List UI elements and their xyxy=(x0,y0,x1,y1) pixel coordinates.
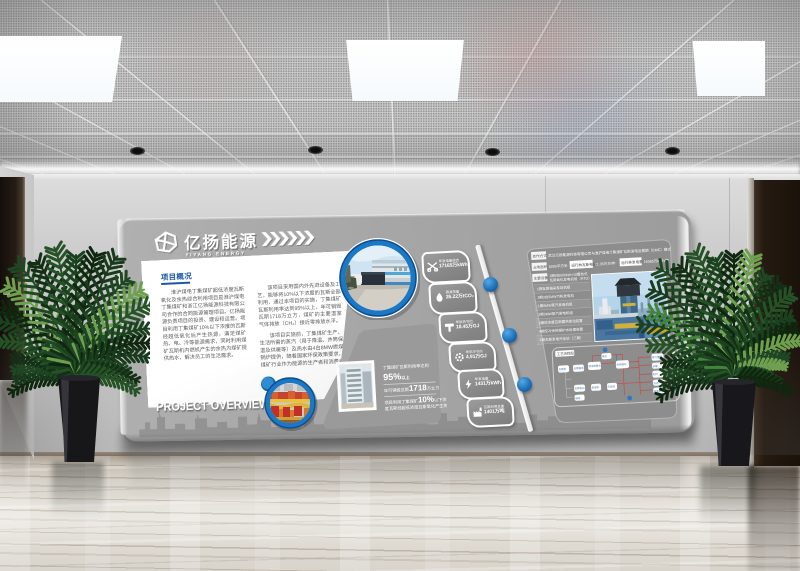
svg-text:瓦斯泵: 瓦斯泵 xyxy=(558,367,566,371)
svg-text:瓦斯电站: 瓦斯电站 xyxy=(574,386,585,391)
svg-text:占地面积: 占地面积 xyxy=(533,264,548,270)
svg-text:余热锅炉: 余热锅炉 xyxy=(616,362,627,367)
svg-text:6000平方米: 6000平方米 xyxy=(549,263,568,269)
svg-text:电网: 电网 xyxy=(575,396,581,400)
svg-text:排空: 排空 xyxy=(602,354,608,358)
svg-text:升压站: 升压站 xyxy=(607,384,615,388)
svg-text:低浓度氧化: 低浓度氧化 xyxy=(588,363,601,368)
svg-text:主要设备: 主要设备 xyxy=(533,275,548,281)
svg-text:工艺流程图: 工艺流程图 xyxy=(557,350,575,356)
svg-text:合作方式: 合作方式 xyxy=(532,253,547,259)
svg-text:发电机: 发电机 xyxy=(591,385,599,389)
svg-text:亿扬能源: 亿扬能源 xyxy=(184,230,259,253)
svg-text:瓦斯输送: 瓦斯输送 xyxy=(573,366,584,371)
